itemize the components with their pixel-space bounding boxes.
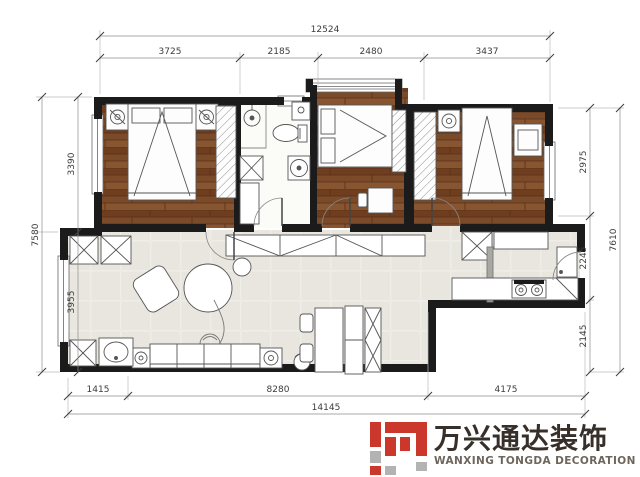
dim-bottom-seg-2: 8280 [267, 385, 290, 395]
double-bed [128, 104, 196, 200]
dining-cabinet [345, 306, 381, 374]
balcony-cabinet-bottom [70, 338, 133, 366]
bed [462, 108, 512, 200]
entry-door [553, 247, 581, 280]
vanity-counter [292, 102, 310, 120]
dim-right-seg-2: 2245 [579, 247, 589, 270]
side-table-left [132, 348, 150, 368]
dim-top-seg-2: 2185 [268, 47, 291, 57]
dim-left-total: 7580 [31, 223, 41, 246]
dim-bottom-seg-3: 4175 [495, 385, 518, 395]
bathroom-sink [288, 156, 310, 180]
floorplan-page: 12524 3725 2185 2480 3437 7580 3390 3955… [0, 0, 640, 477]
dim-bottom-total: 14145 [312, 403, 341, 413]
dim-top-seg-4: 3437 [476, 47, 499, 57]
dim-left-seg-1: 3390 [67, 152, 77, 175]
bay-window [306, 79, 402, 92]
logo-chinese-name: 万兴通达装饰 [434, 425, 636, 453]
floorplan-drawing: 12524 3725 2185 2480 3437 7580 3390 3955… [0, 0, 640, 477]
dim-top-total: 12524 [311, 25, 340, 35]
toilet [273, 125, 307, 143]
sofa [150, 344, 260, 368]
kitchen-counter-top [494, 232, 548, 249]
nightstand-right [195, 104, 218, 130]
stove [512, 280, 546, 298]
dim-right-seg-1: 2975 [579, 151, 589, 174]
nightstand-left [106, 104, 129, 130]
logo-text: 万兴通达装饰 WANXING TONGDA DECORATION [434, 425, 636, 467]
logo-english-name: WANXING TONGDA DECORATION [434, 456, 636, 467]
dim-bottom-seg-1: 1415 [87, 385, 110, 395]
company-logo: 万兴通达装饰 WANXING TONGDA DECORATION [370, 417, 638, 475]
dim-top-seg-3: 2480 [360, 47, 383, 57]
tv-sideboard [226, 235, 425, 256]
wardrobe [392, 110, 406, 172]
desk-chair [514, 124, 542, 156]
dim-right-total: 7610 [609, 228, 619, 251]
master-window [92, 115, 103, 194]
wardrobe [414, 112, 436, 200]
side-table-right [260, 348, 282, 368]
dim-right-seg-3: 2145 [579, 325, 589, 348]
logo-mark-icon [370, 418, 427, 475]
bed [318, 105, 392, 167]
dim-top-seg-1: 3725 [159, 47, 182, 57]
right-bedroom-window [544, 142, 555, 200]
dim-left-seg-2: 3955 [67, 291, 77, 314]
wardrobe [216, 106, 236, 198]
nightstand [438, 110, 460, 132]
